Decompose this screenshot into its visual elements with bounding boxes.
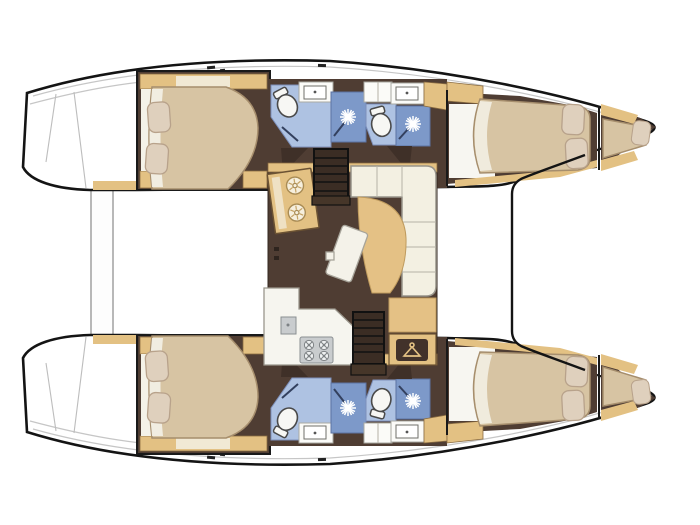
stove-top — [300, 337, 333, 363]
table-leg — [326, 252, 334, 260]
wall-fitting — [274, 247, 279, 251]
catamaran-floorplan-page — [0, 0, 700, 525]
companionway-stairs-port — [312, 149, 350, 205]
saloon — [264, 149, 437, 375]
stove-burner-icon — [319, 340, 328, 349]
sink-drain — [287, 324, 290, 327]
stove-burner-icon — [304, 351, 313, 360]
catamaran-floorplan — [0, 0, 700, 525]
wardrobe — [389, 334, 436, 365]
twin-basin-galley-unit — [267, 168, 319, 234]
seat-base — [389, 298, 436, 332]
stove-burner-icon — [304, 340, 313, 349]
wall-fitting — [274, 256, 279, 260]
companionway-stairs-starboard — [351, 312, 386, 375]
stove-burner-icon — [319, 351, 328, 360]
